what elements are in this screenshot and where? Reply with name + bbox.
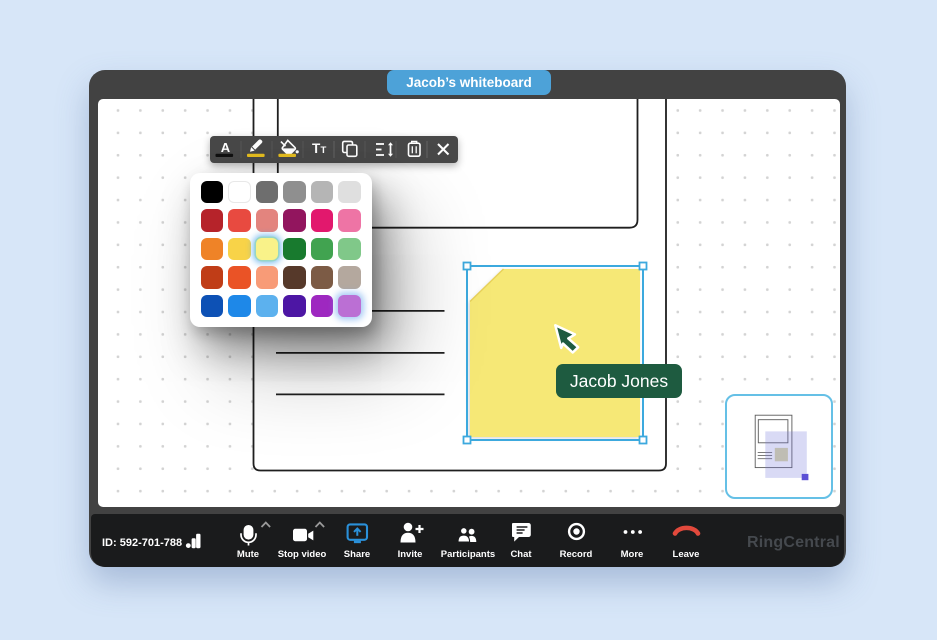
svg-text:A: A: [220, 140, 230, 155]
svg-text:T: T: [320, 145, 326, 156]
